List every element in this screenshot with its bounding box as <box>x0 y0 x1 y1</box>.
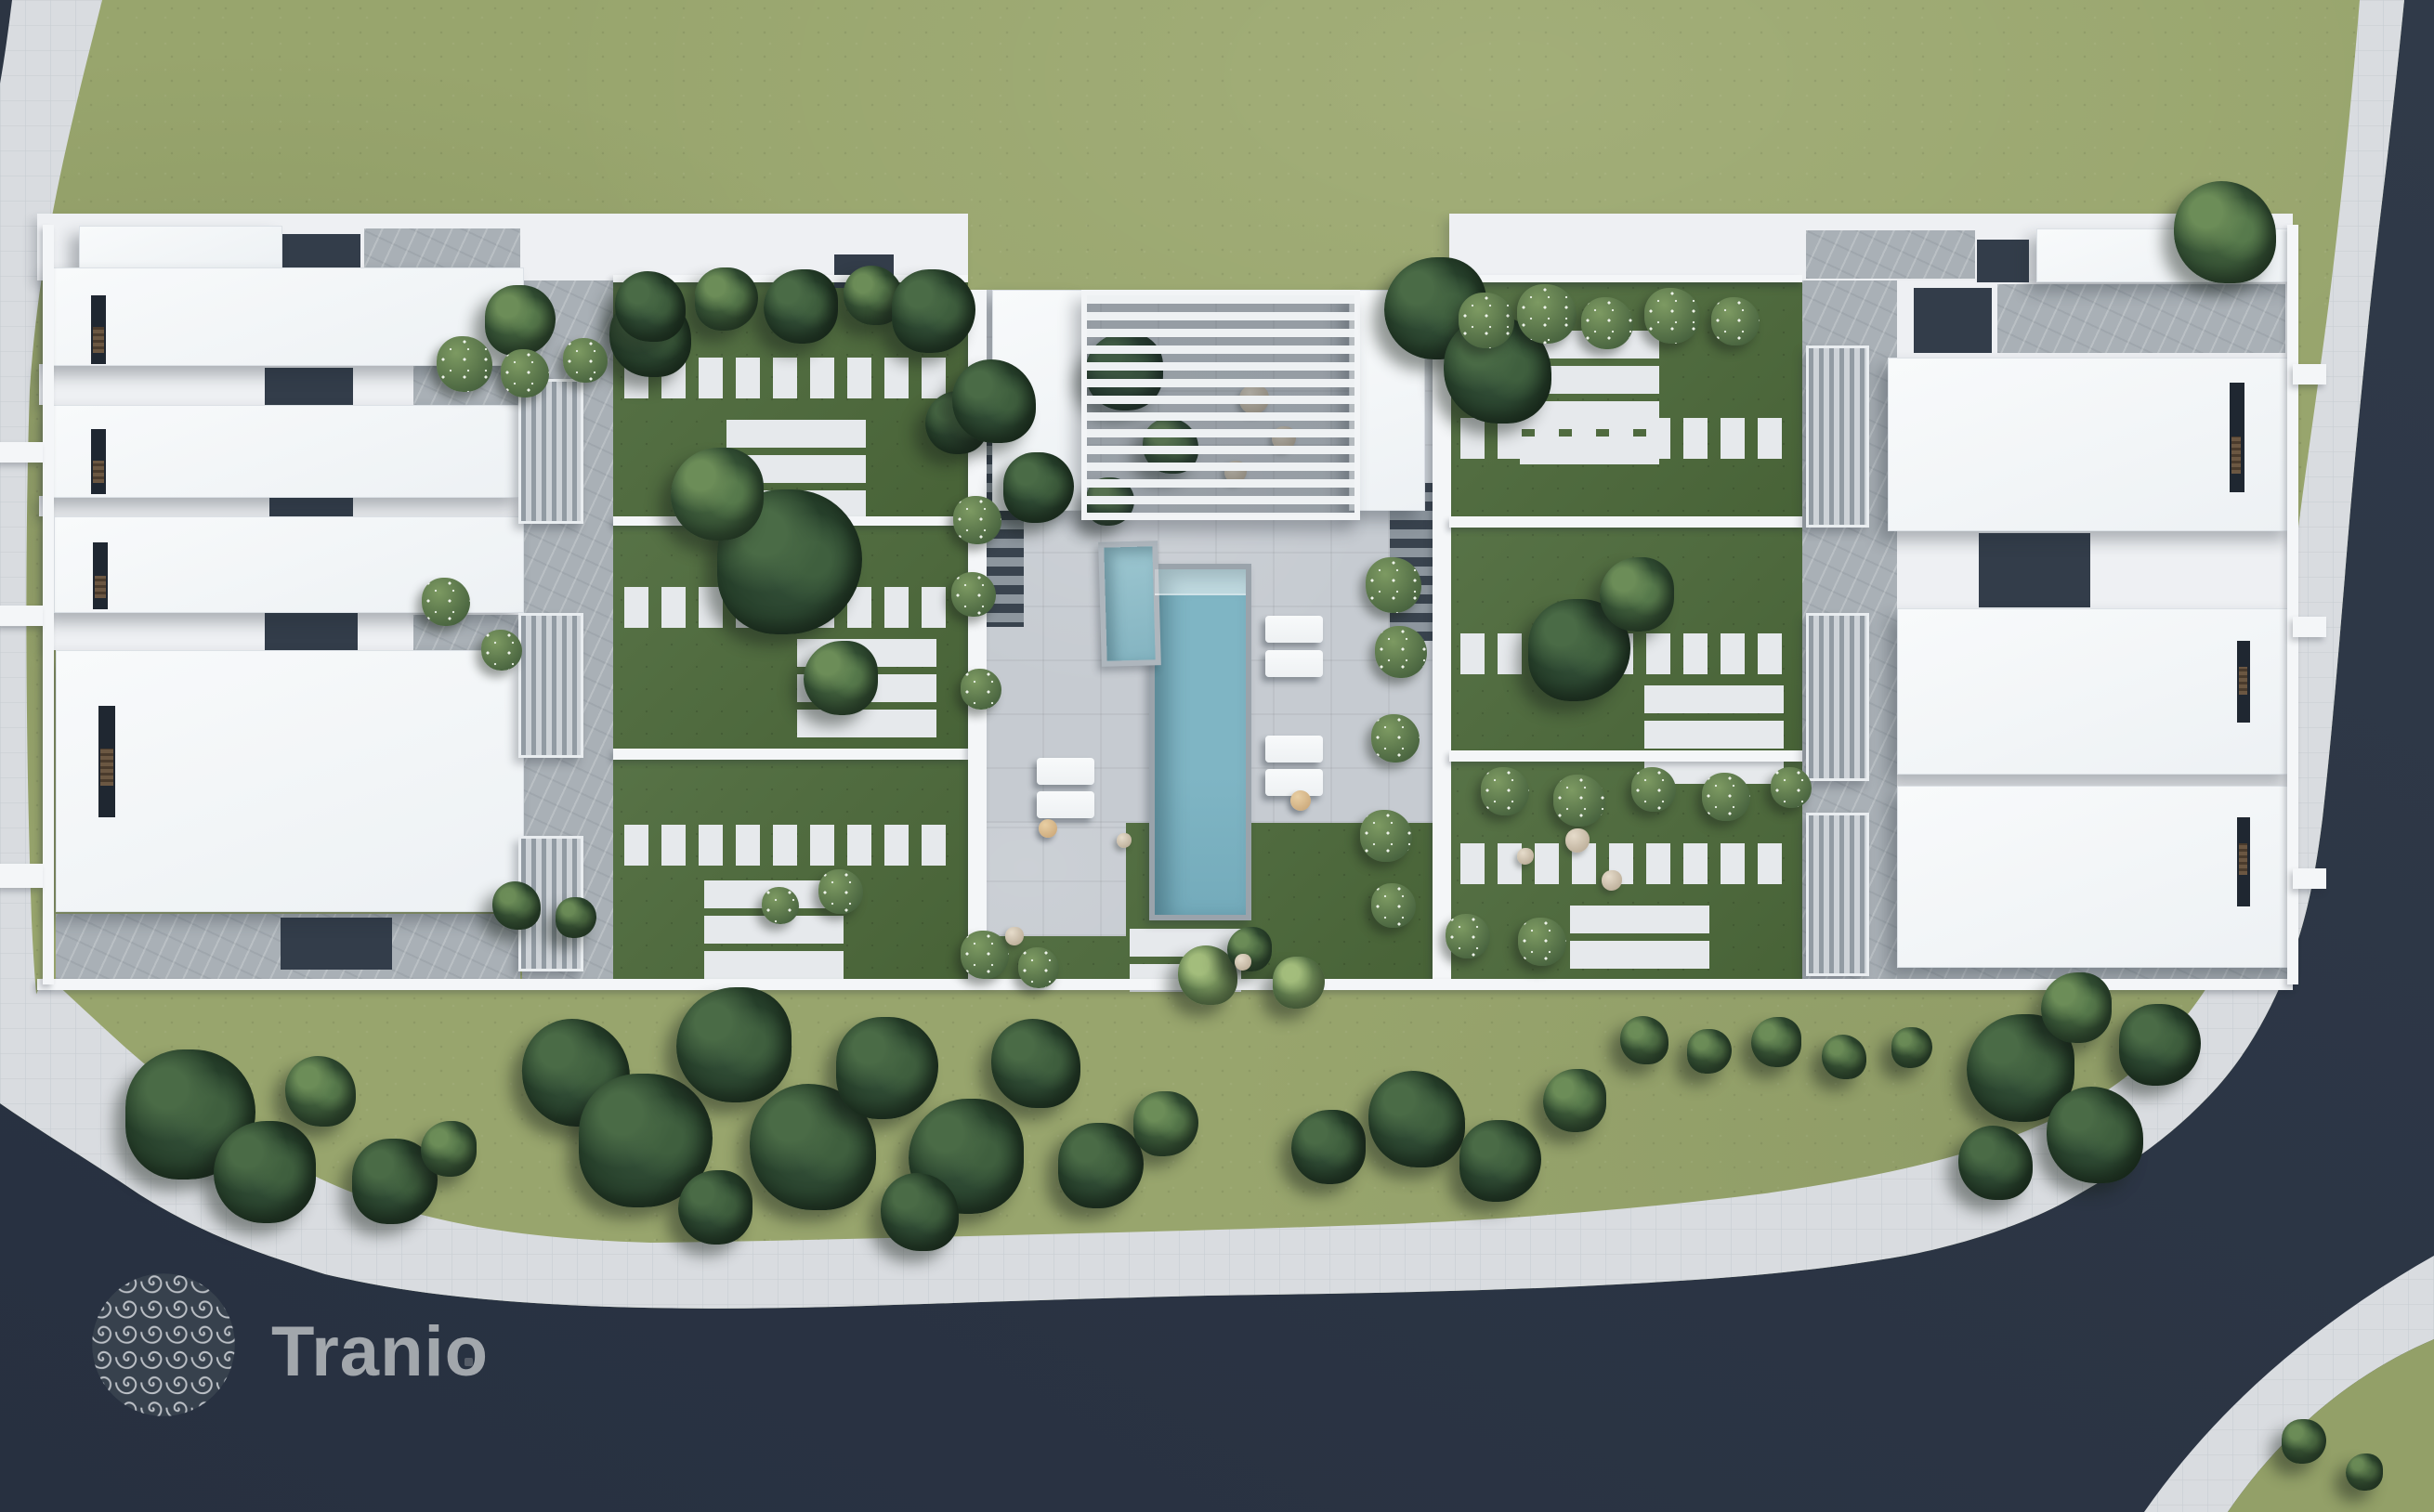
complex-edge-wall <box>43 225 54 984</box>
slatted-pergola <box>1806 813 1869 976</box>
tree <box>804 641 878 715</box>
tree <box>671 448 764 541</box>
roof-gap-band <box>1897 773 2293 786</box>
flowering-shrub <box>953 496 1001 544</box>
stepping-stone-row <box>1460 843 1784 884</box>
complex-bottom-wall <box>37 979 2293 990</box>
entrance-walkway <box>0 606 43 626</box>
sun-lounger <box>1265 616 1323 643</box>
building-roof <box>1897 786 2295 968</box>
aerial-site-render: Tranio <box>0 0 2434 1512</box>
pool-steps <box>1155 569 1246 595</box>
wood-deck-sliver <box>2239 843 2247 875</box>
shaded-patio <box>1977 240 2029 282</box>
tree <box>1687 1029 1732 1074</box>
tree <box>1958 1126 2033 1200</box>
flowering-shrub <box>1375 626 1427 678</box>
kids-pool <box>1104 546 1155 660</box>
wood-deck-sliver <box>100 749 113 786</box>
flowering-shrub <box>437 336 492 392</box>
tree <box>2282 1419 2326 1464</box>
flowering-shrub <box>1371 714 1420 763</box>
garden-wall <box>1449 275 1802 282</box>
tree <box>2041 972 2112 1043</box>
entrance-walkway <box>2293 364 2326 385</box>
tree <box>2174 181 2276 283</box>
tree <box>1891 1027 1932 1068</box>
flowering-shrub <box>1518 918 1566 966</box>
shaded-patio <box>1979 533 2090 607</box>
tree <box>285 1056 356 1127</box>
tree <box>836 1017 938 1119</box>
side-table <box>1290 790 1311 811</box>
flowering-shrub <box>1446 914 1490 958</box>
pergola-slats <box>1081 290 1360 520</box>
flowering-shrub <box>481 630 522 671</box>
tree <box>1600 557 1674 632</box>
flowering-shrub <box>1018 947 1059 988</box>
flowering-shrub <box>951 572 996 617</box>
flowering-shrub <box>1771 767 1812 808</box>
flowering-shrub <box>1517 284 1577 344</box>
flowering-shrub <box>501 349 549 398</box>
slatted-pergola <box>1806 345 1869 528</box>
wood-deck-sliver <box>93 461 104 483</box>
building-roof <box>56 650 524 912</box>
shaded-patio <box>265 613 358 650</box>
shaded-patio <box>1914 288 1992 353</box>
tree <box>2346 1453 2383 1491</box>
sun-lounger <box>1265 650 1323 677</box>
flowering-shrub <box>1366 557 1421 613</box>
building-roof <box>51 405 524 498</box>
tree <box>1291 1110 1366 1184</box>
entrance-walkway <box>2293 617 2326 637</box>
flowering-shrub <box>1360 810 1412 862</box>
flowering-shrub <box>1481 767 1529 815</box>
building-roof-upper-left <box>79 226 282 271</box>
flowering-shrub <box>961 931 1009 979</box>
flowering-shrub <box>1631 767 1676 812</box>
sun-lounger <box>1037 758 1094 785</box>
sun-lounger <box>1265 736 1323 763</box>
side-table <box>1039 819 1057 838</box>
slatted-pergola <box>518 613 583 758</box>
paving-slab-stack <box>1570 906 1709 969</box>
watermark-brand-text: Tranio <box>271 1311 489 1392</box>
garden-wall <box>613 749 968 760</box>
flowering-shrub <box>818 869 863 914</box>
wood-deck-sliver <box>93 327 104 353</box>
shaded-patio <box>269 498 353 516</box>
garden-wall <box>1449 516 1802 528</box>
tree <box>2119 1004 2201 1086</box>
tree <box>1459 1120 1541 1202</box>
tree <box>991 1019 1080 1108</box>
shaded-patio <box>265 368 353 405</box>
tree <box>1368 1071 1465 1167</box>
tree <box>492 881 541 930</box>
flowering-shrub <box>1553 775 1605 827</box>
tree <box>2047 1087 2143 1183</box>
tree <box>1751 1017 1801 1067</box>
flowering-shrub <box>1644 288 1700 344</box>
entrance-walkway <box>0 442 43 463</box>
swimming-pool <box>1155 569 1246 915</box>
flowering-shrub <box>1702 773 1750 821</box>
tree <box>1543 1069 1606 1132</box>
tree <box>214 1121 316 1223</box>
building-roof <box>1897 608 2295 775</box>
wood-deck-sliver <box>2239 667 2247 695</box>
stepping-stone-row <box>624 825 955 866</box>
slatted-pergola <box>1806 613 1869 781</box>
tree <box>1620 1016 1668 1064</box>
roof-terrace <box>1997 284 2285 353</box>
tree <box>764 269 838 344</box>
roof-gap-band <box>1897 529 2293 608</box>
entrance-walkway <box>0 864 43 888</box>
flowering-shrub <box>961 669 1001 710</box>
wood-deck-sliver <box>95 576 106 598</box>
tranio-spiral-logo <box>89 1271 238 1419</box>
slatted-pergola <box>518 379 583 524</box>
scene-objects <box>0 0 2434 1512</box>
tree <box>1273 957 1325 1009</box>
shaded-patio <box>281 918 392 970</box>
watermark-dot <box>465 1358 473 1366</box>
wood-deck-sliver <box>2231 437 2241 474</box>
flowering-shrub <box>563 338 608 383</box>
tree <box>421 1121 477 1177</box>
tree <box>1822 1035 1866 1079</box>
entrance-walkway <box>2293 868 2326 889</box>
sun-lounger <box>1037 791 1094 818</box>
flowering-shrub <box>1581 297 1633 349</box>
flowering-shrub <box>422 578 470 626</box>
tree <box>678 1170 752 1245</box>
flowering-shrub <box>1459 293 1514 348</box>
tree <box>676 987 792 1102</box>
tree <box>1058 1123 1144 1208</box>
tree <box>1133 1091 1198 1156</box>
roof-terrace <box>1806 230 1975 279</box>
flowering-shrub <box>1711 297 1760 345</box>
flowering-shrub <box>762 887 799 924</box>
flowering-shrub <box>1371 883 1416 928</box>
pool-deck-lower <box>985 823 1126 936</box>
paving-slab-stack <box>1644 685 1784 784</box>
garden-wall <box>1449 750 1802 762</box>
